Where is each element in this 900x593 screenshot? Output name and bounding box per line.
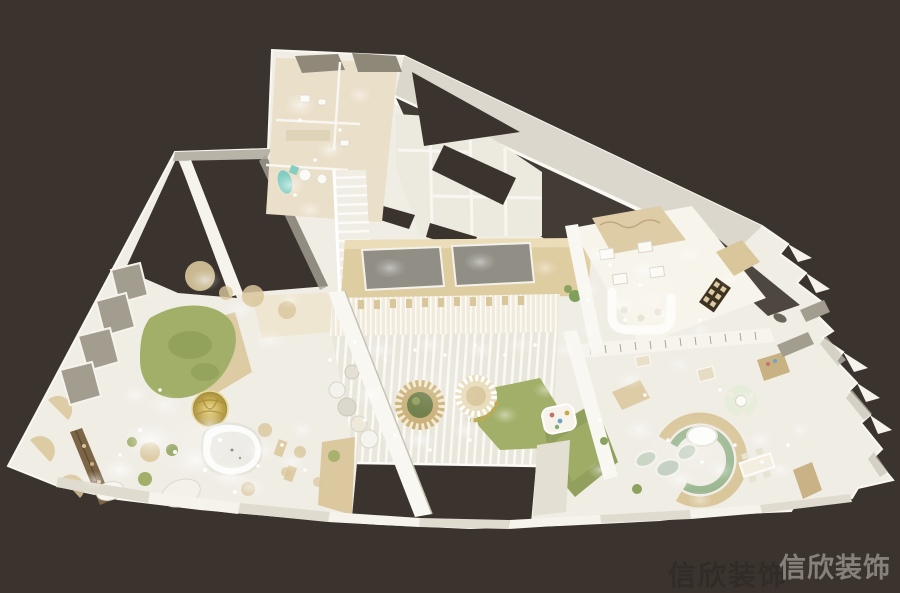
playhouse bbox=[541, 403, 578, 435]
floorplan-svg bbox=[0, 0, 900, 593]
toy-shelf bbox=[330, 294, 560, 336]
building bbox=[8, 50, 893, 529]
floorplan-render: 信欣装饰 信欣装饰 bbox=[0, 0, 900, 593]
